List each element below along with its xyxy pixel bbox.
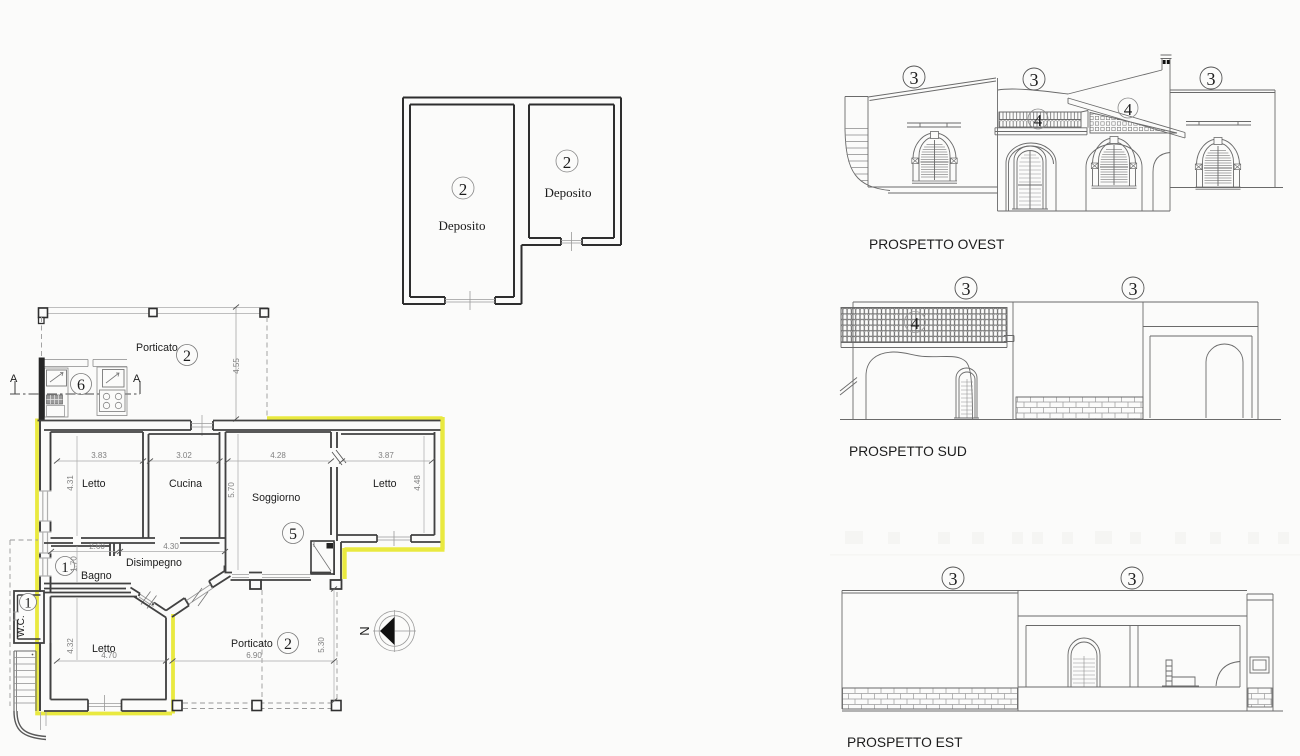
svg-text:2.60: 2.60 [89,542,105,551]
svg-text:Cucina: Cucina [169,478,202,490]
svg-text:4.48: 4.48 [413,475,422,491]
svg-text:1: 1 [61,560,69,576]
svg-text:Porticato: Porticato [136,342,178,354]
svg-text:A: A [133,373,141,385]
svg-text:N: N [357,626,372,635]
svg-text:4.55: 4.55 [232,358,241,374]
svg-text:1.70: 1.70 [70,556,79,572]
svg-text:3: 3 [1128,569,1137,589]
svg-text:PROSPETTO OVEST: PROSPETTO OVEST [869,237,1005,252]
svg-text:A: A [10,373,18,385]
svg-text:Letto: Letto [82,478,106,490]
svg-text:4.32: 4.32 [66,638,75,654]
svg-text:4: 4 [911,314,920,333]
svg-text:Letto: Letto [373,478,397,490]
svg-text:3.83: 3.83 [91,451,107,460]
svg-text:Soggiorno: Soggiorno [252,492,300,504]
svg-text:2: 2 [183,348,191,365]
svg-text:3: 3 [910,68,919,88]
svg-text:3.87: 3.87 [378,451,394,460]
svg-text:3: 3 [1207,69,1216,89]
svg-text:4.28: 4.28 [270,451,286,460]
svg-text:PROSPETTO SUD: PROSPETTO SUD [849,444,967,459]
svg-text:5: 5 [289,526,297,543]
svg-text:4.31: 4.31 [66,475,75,491]
svg-text:Letto: Letto [92,643,116,655]
svg-text:2: 2 [284,636,292,653]
svg-text:Bagno: Bagno [81,570,112,582]
svg-text:4.30: 4.30 [163,542,179,551]
svg-text:6: 6 [77,377,85,394]
svg-text:3: 3 [962,279,971,299]
svg-text:Deposito: Deposito [545,185,592,200]
svg-text:3.02: 3.02 [176,451,192,460]
svg-text:4: 4 [1034,111,1043,130]
svg-text:PROSPETTO EST: PROSPETTO EST [847,735,963,750]
svg-text:Porticato: Porticato [231,638,273,650]
svg-text:2: 2 [459,180,468,199]
svg-text:W.C.: W.C. [16,615,27,637]
svg-text:Disimpegno: Disimpegno [126,557,182,569]
svg-text:5.70: 5.70 [227,482,236,498]
svg-text:2: 2 [563,153,572,172]
svg-text:3: 3 [1129,279,1138,299]
svg-text:4: 4 [1124,100,1133,119]
svg-text:6.90: 6.90 [246,651,262,660]
svg-text:3: 3 [1030,70,1039,90]
svg-text:1: 1 [24,596,31,612]
svg-text:3: 3 [949,569,958,589]
svg-text:Deposito: Deposito [439,218,486,233]
svg-text:5.30: 5.30 [317,637,326,653]
